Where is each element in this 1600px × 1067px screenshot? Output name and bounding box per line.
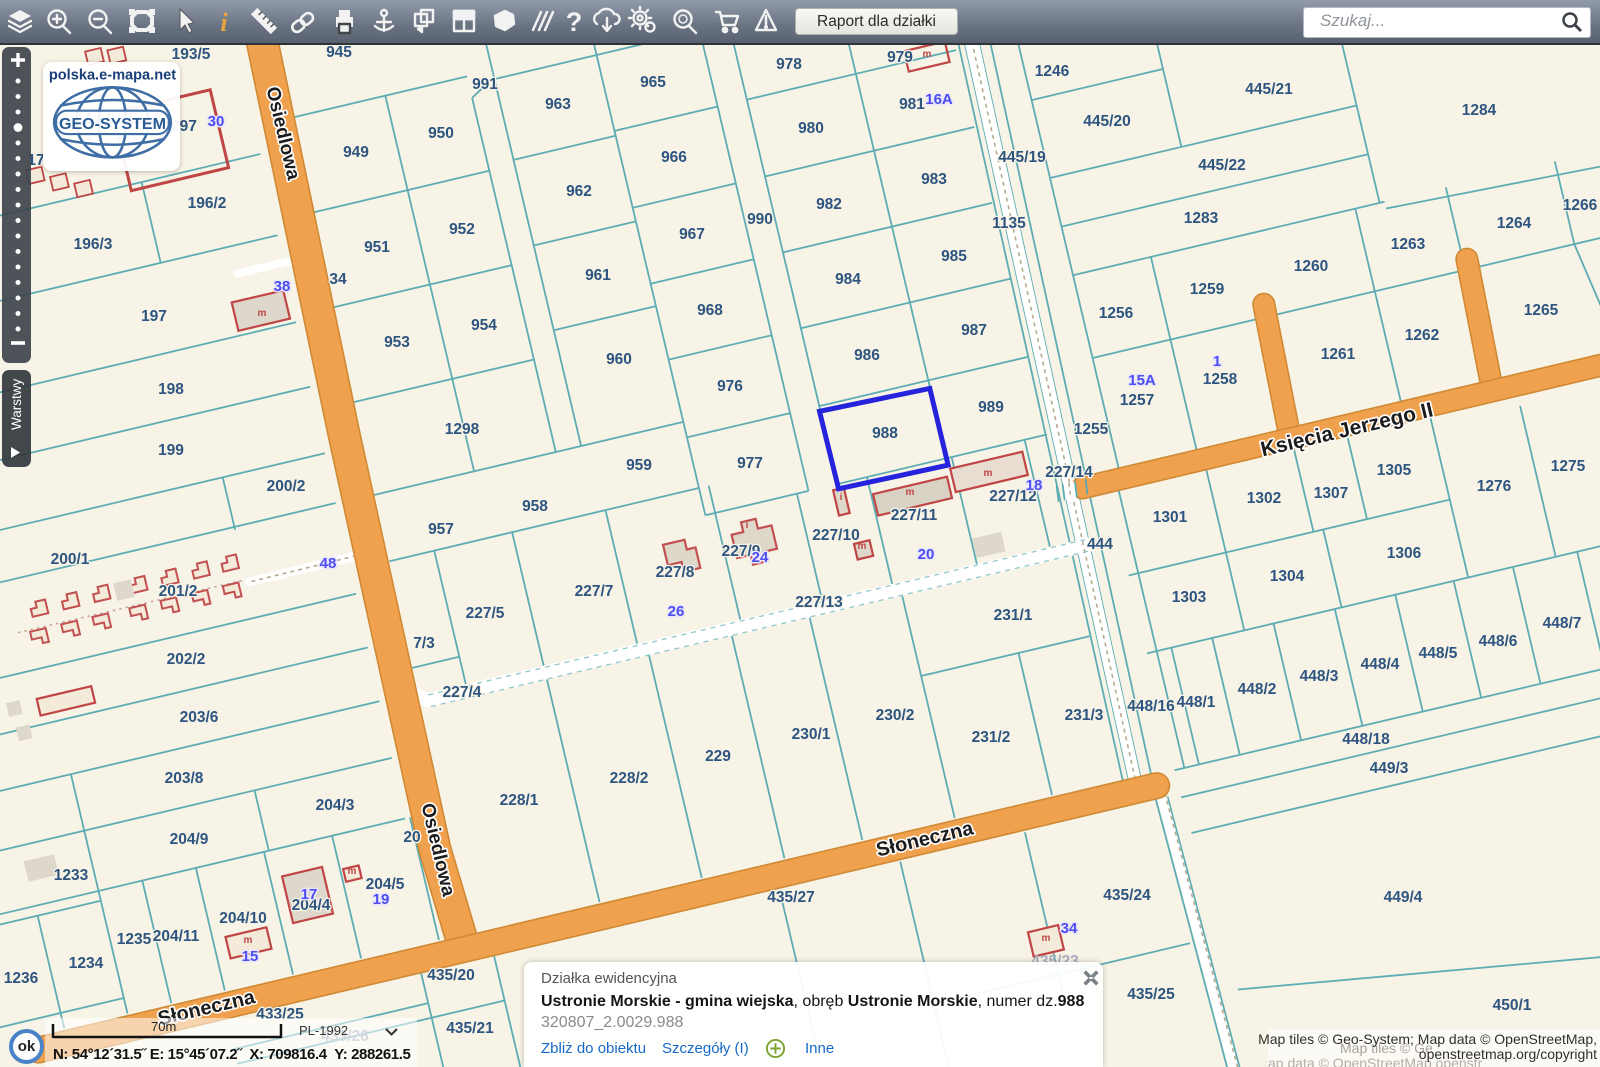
svg-text:959: 959 bbox=[626, 457, 652, 474]
svg-text:227/4: 227/4 bbox=[443, 684, 482, 701]
svg-text:978: 978 bbox=[776, 56, 802, 73]
svg-text:1305: 1305 bbox=[1377, 462, 1412, 479]
svg-text:198: 198 bbox=[158, 381, 184, 398]
svg-text:1265: 1265 bbox=[1524, 302, 1559, 319]
svg-text:227/7: 227/7 bbox=[575, 583, 614, 600]
svg-text:16A: 16A bbox=[925, 91, 953, 108]
svg-text:1255: 1255 bbox=[1074, 421, 1109, 438]
svg-text:1260: 1260 bbox=[1294, 258, 1328, 275]
svg-text:34: 34 bbox=[1061, 920, 1078, 937]
svg-text:34: 34 bbox=[329, 271, 347, 288]
svg-text:204/3: 204/3 bbox=[316, 797, 355, 814]
svg-text:17: 17 bbox=[301, 886, 318, 903]
svg-text:1257: 1257 bbox=[1120, 392, 1154, 409]
svg-text:945: 945 bbox=[326, 44, 352, 61]
svg-text:965: 965 bbox=[640, 74, 666, 91]
svg-text:1307: 1307 bbox=[1314, 485, 1348, 502]
svg-text:1264: 1264 bbox=[1497, 215, 1532, 232]
svg-text:982: 982 bbox=[816, 196, 842, 213]
svg-text:989: 989 bbox=[978, 399, 1004, 416]
svg-text:30: 30 bbox=[208, 113, 225, 130]
svg-text:199: 199 bbox=[158, 442, 184, 459]
svg-text:951: 951 bbox=[364, 239, 390, 256]
svg-text:19: 19 bbox=[373, 891, 390, 908]
svg-text:GEO-SYSTEM: GEO-SYSTEM bbox=[59, 115, 166, 133]
svg-text:1261: 1261 bbox=[1321, 346, 1356, 363]
svg-text:1256: 1256 bbox=[1099, 305, 1134, 322]
svg-text:204/10: 204/10 bbox=[219, 910, 266, 927]
svg-text:1276: 1276 bbox=[1477, 478, 1512, 495]
svg-text:953: 953 bbox=[384, 334, 410, 351]
svg-text:20: 20 bbox=[403, 829, 420, 846]
svg-text:987: 987 bbox=[961, 322, 987, 339]
svg-text:1266: 1266 bbox=[1563, 197, 1598, 214]
svg-text:983: 983 bbox=[921, 171, 947, 188]
svg-text:445/21: 445/21 bbox=[1245, 81, 1293, 98]
svg-text:968: 968 bbox=[697, 302, 723, 319]
svg-text:197: 197 bbox=[141, 308, 167, 325]
svg-text:227/5: 227/5 bbox=[466, 605, 505, 622]
svg-text:967: 967 bbox=[679, 226, 705, 243]
svg-text:1135: 1135 bbox=[992, 215, 1026, 232]
svg-text:1298: 1298 bbox=[445, 421, 480, 438]
svg-text:981: 981 bbox=[899, 96, 925, 113]
svg-text:m: m bbox=[244, 935, 253, 946]
svg-text:227/13: 227/13 bbox=[795, 594, 843, 611]
svg-text:70m: 70m bbox=[151, 1019, 176, 1034]
svg-text:38: 38 bbox=[274, 278, 291, 295]
svg-text:448/3: 448/3 bbox=[1300, 668, 1339, 685]
svg-text:966: 966 bbox=[661, 149, 687, 166]
svg-text:448/7: 448/7 bbox=[1543, 615, 1582, 632]
svg-text:m: m bbox=[906, 487, 915, 498]
svg-text:193/5: 193/5 bbox=[172, 46, 211, 63]
svg-text:976: 976 bbox=[717, 378, 743, 395]
svg-text:949: 949 bbox=[343, 144, 369, 161]
svg-text:435/21: 435/21 bbox=[446, 1020, 494, 1037]
svg-text:231/2: 231/2 bbox=[972, 729, 1011, 746]
svg-text:444: 444 bbox=[1087, 536, 1113, 553]
svg-text:24: 24 bbox=[752, 549, 769, 566]
svg-text:448/2: 448/2 bbox=[1238, 681, 1277, 698]
svg-text:204/11: 204/11 bbox=[153, 928, 200, 945]
svg-text:961: 961 bbox=[585, 267, 611, 284]
svg-text:1283: 1283 bbox=[1184, 210, 1219, 227]
svg-text:1284: 1284 bbox=[1462, 102, 1497, 119]
svg-text:m: m bbox=[923, 49, 932, 60]
svg-text:448/18: 448/18 bbox=[1342, 731, 1390, 748]
svg-text:448/16: 448/16 bbox=[1127, 698, 1175, 715]
svg-text:200/2: 200/2 bbox=[267, 478, 306, 495]
svg-text:204/9: 204/9 bbox=[170, 831, 209, 848]
svg-text:1234: 1234 bbox=[69, 955, 104, 972]
svg-text:988: 988 bbox=[872, 425, 898, 442]
svg-text:435/25: 435/25 bbox=[1127, 986, 1175, 1003]
svg-text:m: m bbox=[984, 468, 993, 479]
svg-text:Warstwy: Warstwy bbox=[9, 379, 24, 430]
svg-text:1304: 1304 bbox=[1270, 568, 1305, 585]
svg-text:48: 48 bbox=[320, 555, 337, 572]
svg-text:227/8: 227/8 bbox=[656, 564, 695, 581]
svg-text:18: 18 bbox=[1026, 477, 1043, 494]
svg-text:979: 979 bbox=[887, 49, 913, 66]
svg-text:963: 963 bbox=[545, 96, 571, 113]
svg-text:203/8: 203/8 bbox=[165, 770, 204, 787]
svg-text:1246: 1246 bbox=[1035, 63, 1070, 80]
svg-text:229: 229 bbox=[705, 748, 731, 765]
svg-text:957: 957 bbox=[428, 521, 454, 538]
svg-text:984: 984 bbox=[835, 271, 861, 288]
svg-text:1258: 1258 bbox=[1203, 371, 1238, 388]
svg-text:986: 986 bbox=[854, 347, 880, 364]
svg-text:449/4: 449/4 bbox=[1384, 889, 1423, 906]
svg-text:196/2: 196/2 bbox=[188, 195, 227, 212]
svg-text:7/3: 7/3 bbox=[413, 635, 435, 652]
svg-text:958: 958 bbox=[522, 498, 548, 515]
svg-text:231/1: 231/1 bbox=[994, 607, 1033, 624]
svg-text:m: m bbox=[858, 541, 867, 552]
svg-text:m: m bbox=[258, 308, 267, 319]
svg-text:435/24: 435/24 bbox=[1103, 887, 1151, 904]
svg-text:1259: 1259 bbox=[1190, 281, 1225, 298]
svg-text:PL-1992: PL-1992 bbox=[299, 1023, 348, 1038]
svg-text:15: 15 bbox=[242, 948, 259, 965]
svg-text:985: 985 bbox=[941, 248, 967, 265]
svg-text:991: 991 bbox=[472, 76, 498, 93]
svg-text:450/1: 450/1 bbox=[1493, 997, 1532, 1014]
svg-text:231/3: 231/3 bbox=[1065, 707, 1104, 724]
svg-text:1301: 1301 bbox=[1153, 509, 1188, 526]
svg-text:960: 960 bbox=[606, 351, 632, 368]
svg-text:i: i bbox=[746, 520, 749, 531]
svg-text:445/19: 445/19 bbox=[998, 149, 1046, 166]
svg-text:950: 950 bbox=[428, 125, 454, 142]
svg-text:227/11: 227/11 bbox=[891, 507, 938, 524]
svg-text:445/22: 445/22 bbox=[1198, 157, 1245, 174]
svg-text:200/1: 200/1 bbox=[51, 551, 90, 568]
svg-text:m: m bbox=[1042, 933, 1051, 944]
svg-text:1: 1 bbox=[1213, 353, 1221, 370]
svg-text:230/1: 230/1 bbox=[792, 726, 831, 743]
svg-text:990: 990 bbox=[747, 211, 773, 228]
svg-text:980: 980 bbox=[798, 120, 824, 137]
svg-text:228/1: 228/1 bbox=[500, 792, 539, 809]
svg-text:1275: 1275 bbox=[1551, 458, 1586, 475]
svg-text:196/3: 196/3 bbox=[74, 236, 113, 253]
svg-text:445/20: 445/20 bbox=[1083, 113, 1130, 130]
svg-text:952: 952 bbox=[449, 221, 475, 238]
svg-text:227/10: 227/10 bbox=[812, 527, 859, 544]
svg-text:1233: 1233 bbox=[54, 867, 89, 884]
svg-text:26: 26 bbox=[668, 603, 685, 620]
svg-text:435/27: 435/27 bbox=[767, 889, 814, 906]
svg-text:1306: 1306 bbox=[1387, 545, 1422, 562]
svg-text:1263: 1263 bbox=[1391, 236, 1426, 253]
svg-text:201/2: 201/2 bbox=[159, 583, 198, 600]
svg-text:435/20: 435/20 bbox=[427, 967, 474, 984]
svg-text:227/14: 227/14 bbox=[1045, 464, 1093, 481]
svg-text:954: 954 bbox=[471, 317, 497, 334]
svg-text:m: m bbox=[348, 866, 357, 877]
svg-text:230/2: 230/2 bbox=[876, 707, 915, 724]
svg-text:448/6: 448/6 bbox=[1479, 633, 1518, 650]
svg-text:15A: 15A bbox=[1128, 372, 1156, 389]
svg-text:228/2: 228/2 bbox=[610, 770, 649, 787]
svg-text:?: ? bbox=[566, 7, 583, 37]
svg-text:448/1: 448/1 bbox=[1177, 694, 1216, 711]
svg-text:1303: 1303 bbox=[1172, 589, 1207, 606]
svg-text:203/6: 203/6 bbox=[180, 709, 219, 726]
svg-text:1235: 1235 bbox=[117, 931, 152, 948]
svg-text:20: 20 bbox=[918, 546, 935, 563]
svg-text:962: 962 bbox=[566, 183, 592, 200]
svg-text:1262: 1262 bbox=[1405, 327, 1439, 344]
svg-text:448/5: 448/5 bbox=[1419, 645, 1458, 662]
svg-text:449/3: 449/3 bbox=[1370, 760, 1409, 777]
svg-text:i: i bbox=[220, 8, 228, 37]
svg-text:1302: 1302 bbox=[1247, 490, 1281, 507]
svg-text:1236: 1236 bbox=[4, 970, 39, 987]
svg-text:i: i bbox=[840, 492, 843, 503]
svg-text:202/2: 202/2 bbox=[167, 651, 206, 668]
svg-text:polska.e-mapa.net: polska.e-mapa.net bbox=[49, 68, 176, 84]
svg-text:977: 977 bbox=[737, 455, 763, 472]
svg-text:448/4: 448/4 bbox=[1361, 656, 1400, 673]
